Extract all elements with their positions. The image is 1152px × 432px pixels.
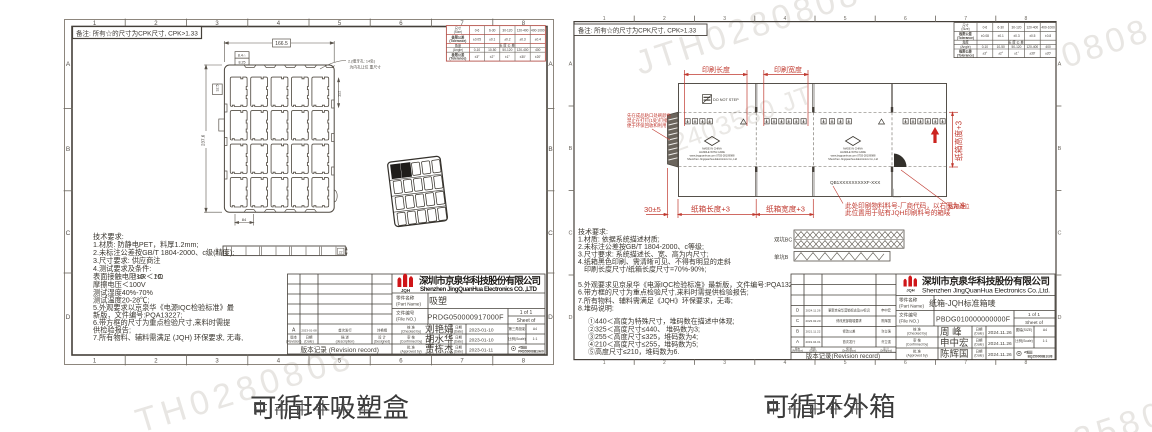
svg-text:8.堆码说明:: 8.堆码说明:	[578, 304, 614, 313]
svg-text:HANDLE WITH CARE: HANDLE WITH CARE	[840, 150, 866, 154]
svg-text:B: B	[796, 329, 799, 334]
svg-text:±3°: ±3°	[983, 52, 989, 56]
svg-text:申中宏: 申中宏	[881, 308, 891, 313]
svg-text:(Date): (Date)	[454, 330, 463, 334]
svg-text:±0.1: ±0.1	[489, 37, 495, 41]
svg-text:±0.5: ±0.5	[1029, 34, 1035, 38]
svg-text:技术要求:: 技术要求:	[578, 227, 608, 236]
svg-text:B: B	[66, 146, 70, 153]
svg-text:0-10: 0-10	[982, 45, 989, 49]
svg-text:B: B	[569, 146, 573, 152]
svg-text:±30′: ±30′	[1029, 52, 1035, 56]
svg-text:120-400: 120-400	[517, 48, 529, 52]
svg-text:10-50: 10-50	[997, 45, 1005, 49]
svg-text:印刷长度尺寸/纸箱长度尺寸=70%-90%;: 印刷长度尺寸/纸箱长度尺寸=70%-90%;	[584, 265, 706, 274]
svg-text:首次发行: 首次发行	[338, 328, 352, 333]
svg-text:(Date): (Date)	[974, 332, 983, 336]
svg-text:A4: A4	[533, 327, 537, 331]
svg-text:纸箱宽度+3: 纸箱宽度+3	[766, 204, 805, 214]
svg-text:④210＜高度尺寸≤255，堆码数为5;: ④210＜高度尺寸≤255，堆码数为5;	[588, 340, 698, 349]
svg-text:(File NO.): (File NO.)	[396, 317, 416, 322]
svg-text:±0.8: ±0.8	[1045, 34, 1051, 38]
svg-text:可循环吸塑盒: 可循环吸塑盒	[250, 393, 409, 423]
svg-text:首次发行: 首次发行	[843, 339, 857, 344]
svg-text:A: A	[569, 62, 573, 68]
svg-text:400: 400	[1045, 45, 1051, 49]
svg-text:QB1XXXXXXXXXF-XXX: QB1XXXXXXXXXF-XXX	[830, 180, 880, 185]
svg-text:B: B	[1058, 146, 1062, 152]
svg-text:⑤高度尺寸≤210，堆码数为6.: ⑤高度尺寸≤210，堆码数为6.	[588, 347, 679, 356]
svg-text:50-120: 50-120	[502, 48, 512, 52]
svg-text:(Size): (Size)	[961, 27, 969, 31]
svg-text:PBDG010000000000F: PBDG010000000000F	[936, 316, 1010, 323]
svg-text:±0.2: ±0.2	[504, 37, 510, 41]
svg-text:1 of 1: 1 of 1	[520, 310, 533, 316]
svg-text:120-400: 120-400	[1026, 25, 1038, 29]
svg-text:(Tolerance): (Tolerance)	[449, 39, 466, 43]
svg-text:A: A	[1058, 62, 1062, 68]
svg-text:JQH: JQH	[906, 288, 914, 293]
svg-text:2023-01-10: 2023-01-10	[469, 338, 494, 344]
svg-text:±0.1: ±0.1	[998, 34, 1004, 38]
svg-text:A: A	[548, 61, 553, 68]
svg-text:32.5: 32.5	[216, 85, 220, 92]
svg-text:2024.11.26: 2024.11.26	[806, 309, 821, 313]
svg-text:30±5: 30±5	[644, 205, 661, 214]
svg-text:Shenzhen Jingquanhua Electroni: Shenzhen Jingquanhua Electronics Co.,Ltd	[687, 157, 737, 161]
svg-text:(Angle): (Angle)	[960, 45, 970, 49]
svg-text:1: 1	[603, 16, 606, 22]
svg-text:角度: 角度	[962, 40, 969, 45]
svg-text:单坑B: 单坑B	[774, 253, 789, 261]
svg-text:7.所有物料、辅料需满足《JQH》环保要求，无毒;: 7.所有物料、辅料需满足《JQH》环保要求，无毒;	[578, 296, 733, 305]
svg-text:237.6: 237.6	[201, 134, 206, 146]
svg-text:400-1000: 400-1000	[1041, 25, 1055, 29]
svg-text:角度: 角度	[455, 43, 462, 48]
svg-text:1 of 1: 1 of 1	[1028, 312, 1040, 318]
svg-text:4: 4	[784, 16, 787, 22]
svg-text:84: 84	[242, 217, 247, 222]
svg-text:(Revision): (Revision)	[792, 350, 803, 353]
svg-text:50-120: 50-120	[1012, 45, 1022, 49]
svg-text:D: D	[66, 314, 71, 321]
svg-text:JQH: JQH	[401, 288, 410, 293]
svg-text:400: 400	[535, 48, 541, 52]
svg-text:B: B	[548, 146, 552, 153]
svg-text:(Date): (Date)	[454, 350, 463, 354]
svg-text:比例(Scale): 比例(Scale)	[1015, 338, 1033, 343]
svg-text:2: 2	[663, 16, 666, 22]
svg-text:2024.11.26: 2024.11.26	[988, 352, 1012, 358]
svg-text:2021.11.22: 2021.11.22	[806, 330, 821, 334]
svg-text:(Date): (Date)	[974, 343, 983, 347]
svg-text:4.纸箱黑色印刷、需清晰可见、不得有明显的走斜: 4.纸箱黑色印刷、需清晰可见、不得有明显的走斜	[578, 257, 731, 266]
svg-text:(Designed): (Designed)	[374, 340, 391, 344]
svg-text:6: 6	[904, 16, 907, 22]
svg-text:±20′: ±20′	[1045, 52, 1051, 56]
svg-text:(Date): (Date)	[974, 354, 983, 358]
svg-text:±2°: ±2°	[490, 55, 496, 59]
svg-text:许立强: 许立强	[881, 339, 891, 344]
svg-text:5: 5	[844, 360, 847, 366]
svg-text:(Part Name): (Part Name)	[396, 302, 421, 307]
svg-text:文件编号: 文件编号	[396, 310, 415, 317]
svg-text:申中宏: 申中宏	[940, 337, 969, 349]
svg-text:www.jingquanhua.com 0755-28109: www.jingquanhua.com 0755-28109988	[690, 154, 735, 158]
svg-text:DO NOT STEP: DO NOT STEP	[713, 98, 739, 102]
svg-text:7: 7	[460, 359, 464, 365]
svg-text:8: 8	[1025, 16, 1028, 22]
svg-text:4: 4	[784, 360, 787, 366]
svg-text:10-50: 10-50	[488, 48, 496, 52]
svg-text:8.4☆: 8.4☆	[238, 54, 247, 58]
svg-text:D: D	[569, 315, 573, 321]
svg-text:2403580 JT: 2403580 JT	[668, 79, 817, 158]
svg-text:HANDLE WITH CARE: HANDLE WITH CARE	[699, 150, 725, 154]
svg-text:版本记录 (Revision record): 版本记录 (Revision record)	[300, 345, 378, 354]
svg-text:纸箱-JQH标准箱唛: 纸箱-JQH标准箱唛	[929, 298, 996, 308]
svg-text:陈辉国: 陈辉国	[940, 348, 969, 360]
svg-text:版本记录(Revision record): 版本记录(Revision record)	[806, 351, 880, 360]
svg-text:MADE IN CHINA: MADE IN CHINA	[702, 147, 722, 151]
svg-text:修改底部箱唛要求: 修改底部箱唛要求	[836, 318, 862, 323]
svg-text:6.带方框的尺寸为重点检验尺寸,来料时需提供检验报告;: 6.带方框的尺寸为重点检验尺寸,来料时需提供检验报告;	[578, 288, 749, 297]
svg-text:纸箱高度+3: 纸箱高度+3	[954, 121, 964, 161]
svg-text:(Revision): (Revision)	[286, 340, 301, 344]
svg-text:长 度 公 差: 长 度 公 差	[499, 43, 514, 48]
svg-text:Shenzhen JingQuanHua Electroni: Shenzhen JingQuanHua Electronics Co.,Ltd…	[922, 288, 1050, 295]
svg-text:2: 2	[663, 360, 666, 366]
svg-text:(Checked by): (Checked by)	[401, 330, 421, 334]
svg-text:±2°: ±2°	[998, 52, 1004, 56]
svg-text:2: 2	[154, 359, 158, 365]
svg-text:2.(细牙孔: 14处): 2.(细牙孔: 14处)	[348, 59, 376, 64]
svg-text:BQ250008B1/3/8: BQ250008B1/3/8	[1028, 355, 1053, 359]
svg-text:2023-01-11: 2023-01-11	[469, 348, 494, 354]
svg-text:C: C	[548, 230, 553, 237]
svg-text:(Date): (Date)	[304, 340, 313, 344]
svg-text:6: 6	[904, 360, 907, 366]
svg-text:6-30: 6-30	[489, 29, 496, 33]
svg-text:文件编号: 文件编号	[899, 312, 918, 319]
svg-text:7.所有物料、辅料需满足 (JQH) 环保要求, 无毒,: 7.所有物料、辅料需满足 (JQH) 环保要求, 无毒,	[93, 333, 243, 342]
svg-text:零件名称: 零件名称	[899, 297, 918, 304]
svg-text:1:1: 1:1	[1043, 339, 1048, 343]
svg-text:D: D	[548, 314, 553, 321]
svg-text:Ω: Ω	[158, 272, 164, 281]
svg-text:3: 3	[723, 360, 726, 366]
svg-text:为内孔让位 重尺寸: 为内孔让位 重尺寸	[350, 65, 382, 70]
svg-text:0-6: 0-6	[983, 25, 988, 29]
svg-text:2023-01-10: 2023-01-10	[469, 328, 494, 334]
svg-text:Shenzhen Jingquanhua Electroni: Shenzhen Jingquanhua Electronics Co.,Ltd	[828, 157, 878, 161]
svg-text:1.材质: 依据系统描述材质;: 1.材质: 依据系统描述材质;	[578, 235, 660, 244]
svg-text:±0.4: ±0.4	[535, 37, 541, 41]
svg-text:(Tolerance): (Tolerance)	[957, 54, 974, 58]
svg-text:7: 7	[964, 16, 967, 22]
svg-text:±3°: ±3°	[475, 55, 481, 59]
svg-text:8: 8	[1025, 360, 1028, 366]
svg-text:粘箱点位: 粘箱点位	[948, 203, 970, 211]
svg-text:①440＜高度为特殊尺寸，堆码数在描述中体现;: ①440＜高度为特殊尺寸，堆码数在描述中体现;	[588, 317, 735, 326]
svg-text:(description): (description)	[336, 340, 355, 344]
svg-text:PRD50008B1/A/0: PRD50008B1/A/0	[518, 350, 544, 354]
svg-text:修改公差: 修改公差	[843, 329, 856, 334]
svg-text:112: 112	[336, 90, 341, 97]
svg-text:www.jingquanhua.com 0755-28109: www.jingquanhua.com 0755-28109988	[831, 154, 876, 158]
svg-text:C: C	[1058, 231, 1062, 237]
svg-text:2024.11.26: 2024.11.26	[988, 341, 1012, 347]
svg-text:3.尺寸要求: 系统描述长、宽、高为内尺寸;: 3.尺寸要求: 系统描述长、宽、高为内尺寸;	[578, 250, 709, 259]
svg-text:120-400: 120-400	[517, 29, 529, 33]
svg-text:(Date): (Date)	[454, 340, 463, 344]
svg-text:此位置用于贴有JQH印刷料号的箱唛: 此位置用于贴有JQH印刷料号的箱唛	[845, 208, 951, 217]
svg-text:MADE IN CHINA: MADE IN CHINA	[843, 147, 863, 151]
svg-text:2.未标注公差按GB/T 1804-2000、c等级;: 2.未标注公差按GB/T 1804-2000、c等级;	[578, 242, 704, 251]
svg-text:2024.11.26: 2024.11.26	[988, 330, 1012, 336]
svg-text:±20′: ±20′	[535, 55, 541, 59]
svg-text:2023.02.20: 2023.02.20	[805, 319, 820, 323]
svg-text:(File NO.): (File NO.)	[899, 319, 919, 324]
svg-text:2019.04.01: 2019.04.01	[805, 340, 820, 344]
svg-text:1: 1	[93, 359, 97, 365]
svg-text:8.25: 8.25	[239, 60, 246, 64]
svg-text:(Tolerance): (Tolerance)	[449, 57, 466, 61]
svg-text:5: 5	[844, 16, 847, 22]
svg-text:吸塑: 吸塑	[429, 296, 447, 306]
svg-text:0808: 0808	[1057, 11, 1152, 75]
svg-text:(Confirmed by): (Confirmed by)	[906, 343, 928, 347]
svg-text:(Tolerance): (Tolerance)	[957, 36, 974, 40]
svg-text:0-6: 0-6	[475, 29, 480, 33]
svg-text:±0.3: ±0.3	[520, 37, 526, 41]
svg-text:Sheet of: Sheet of	[517, 318, 536, 324]
svg-text:±30′: ±30′	[520, 55, 526, 59]
svg-text:±1°: ±1°	[1014, 52, 1020, 56]
svg-text:Shenzhen JingQuanHua Electroni: Shenzhen JingQuanHua Electronics CO. ,LT…	[420, 286, 538, 293]
svg-text:C: C	[569, 231, 573, 237]
svg-text:1: 1	[603, 360, 606, 366]
svg-text:刘艳娟: 刘艳娟	[377, 328, 388, 333]
svg-text:6: 6	[399, 359, 403, 365]
svg-text:更新京泉华营销标志及uv标识: 更新京泉华营销标志及uv标识	[828, 308, 870, 313]
svg-text:30-120: 30-120	[502, 29, 512, 33]
svg-text:(Confirmed by): (Confirmed by)	[400, 340, 422, 344]
svg-text:D: D	[1058, 315, 1062, 321]
svg-text:(Designed): (Designed)	[880, 350, 892, 353]
svg-text:±0.08: ±0.08	[981, 34, 989, 38]
svg-text:30-120: 30-120	[1012, 25, 1022, 29]
svg-text:±0.05: ±0.05	[473, 37, 481, 41]
svg-text:周 峰: 周 峰	[940, 327, 962, 338]
svg-text:±1°: ±1°	[505, 55, 511, 59]
svg-text:8: 8	[522, 359, 526, 365]
svg-text:长 度 公 差: 长 度 公 差	[1008, 40, 1023, 45]
svg-text:贾栋杰: 贾栋杰	[425, 344, 454, 356]
svg-text:双坑BC: 双坑BC	[774, 236, 792, 244]
svg-text:PRDG050000917000F: PRDG050000917000F	[428, 313, 505, 322]
svg-text:A: A	[66, 61, 71, 68]
svg-text:(Checked by): (Checked by)	[907, 332, 927, 336]
svg-text:±0.3: ±0.3	[1013, 34, 1019, 38]
svg-text:备注: 所有☆的尺寸为CPK尺寸, CPK>1.33: 备注: 所有☆的尺寸为CPK尺寸, CPK>1.33	[76, 28, 198, 37]
svg-text:400-1000: 400-1000	[531, 29, 545, 33]
svg-text:3: 3	[723, 16, 726, 22]
svg-text:C: C	[66, 230, 71, 237]
svg-text:便于环保回收和利用: 便于环保回收和利用	[627, 122, 667, 129]
svg-text:166.5: 166.5	[275, 41, 288, 47]
svg-text:(Part Name): (Part Name)	[899, 304, 924, 309]
svg-text:零件名称: 零件名称	[396, 295, 415, 302]
svg-text:3: 3	[215, 359, 219, 365]
svg-text:比例(Scale): 比例(Scale)	[508, 336, 526, 341]
svg-text:②325＜高度尺寸≤440、 堆码数为3;: ②325＜高度尺寸≤440、 堆码数为3;	[588, 325, 700, 334]
svg-text:(Angle): (Angle)	[453, 48, 463, 52]
svg-text:印刷宽度: 印刷宽度	[774, 65, 802, 74]
svg-text:可循环外箱: 可循环外箱	[763, 392, 896, 422]
svg-text:图幅(SIZE): 图幅(SIZE)	[1016, 327, 1033, 332]
svg-text:A4: A4	[1043, 328, 1047, 332]
svg-text:5.外观要求见京泉华《电源IQC检验标准》最新版，文件编号:: 5.外观要求见京泉华《电源IQC检验标准》最新版，文件编号:PQA13227;	[578, 280, 802, 289]
svg-text:22: 22	[339, 250, 343, 254]
svg-text:印刷长度: 印刷长度	[702, 65, 730, 74]
svg-text:(Approved by): (Approved by)	[906, 354, 927, 358]
svg-text:2023-01-08: 2023-01-08	[301, 329, 317, 333]
svg-text:许立强: 许立强	[881, 329, 891, 334]
svg-text:6-30: 6-30	[998, 25, 1005, 29]
svg-text:7: 7	[964, 360, 967, 366]
svg-text:③255＜高度尺寸≤325，堆码数为4;: ③255＜高度尺寸≤325，堆码数为4;	[588, 332, 698, 341]
svg-text:(Approved by): (Approved by)	[400, 350, 421, 354]
svg-text:纸箱长度+3: 纸箱长度+3	[691, 204, 730, 214]
svg-text:陈辉国: 陈辉国	[881, 318, 891, 323]
svg-text:Sheet of: Sheet of	[1025, 320, 1044, 326]
svg-text:120-400: 120-400	[1026, 45, 1038, 49]
svg-text:(Size): (Size)	[454, 30, 462, 34]
svg-text:第三角投影: 第三角投影	[509, 326, 527, 331]
svg-text:备注: 所有☆的尺寸为CPK尺寸, CPK>1.33: 备注: 所有☆的尺寸为CPK尺寸, CPK>1.33	[578, 25, 697, 34]
svg-text:0-10: 0-10	[474, 48, 481, 52]
svg-text:1:1: 1:1	[533, 337, 538, 341]
svg-text:深圳市京泉华科技股份有限公司: 深圳市京泉华科技股份有限公司	[922, 276, 1050, 288]
